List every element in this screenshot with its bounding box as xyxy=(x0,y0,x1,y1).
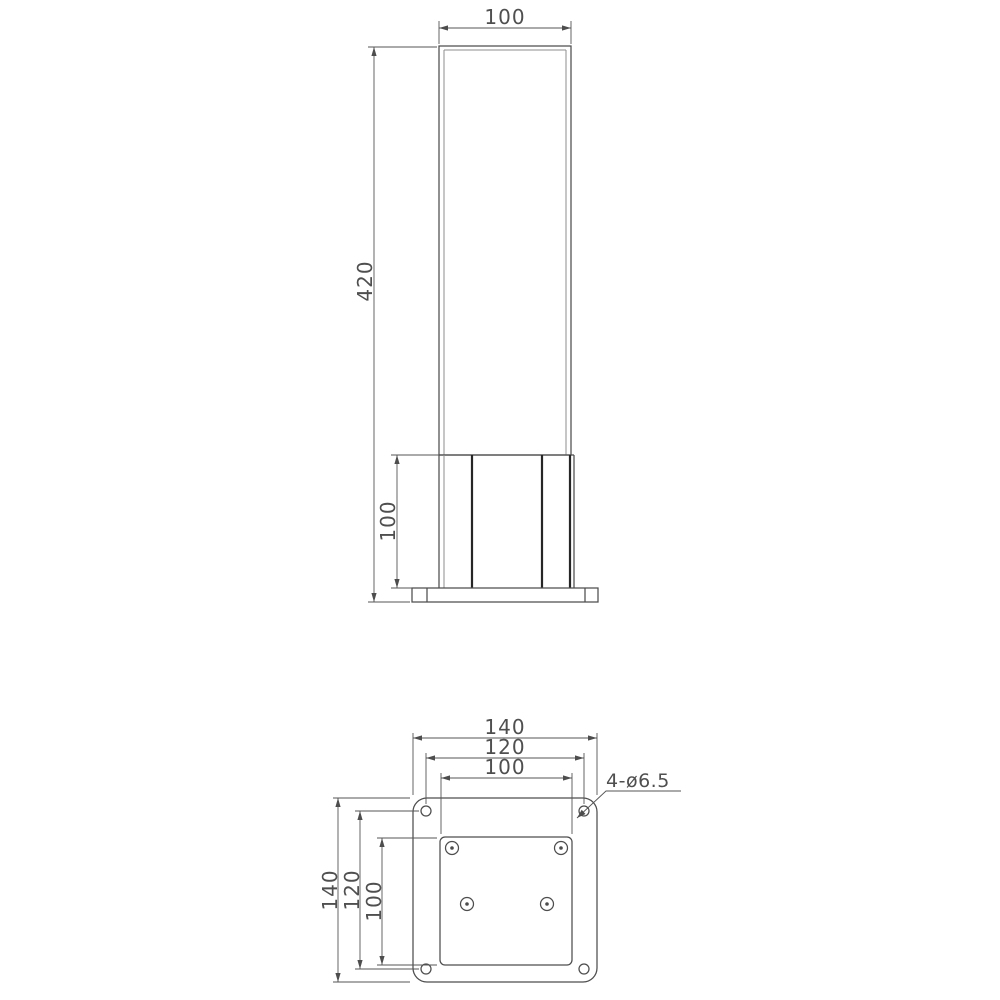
arrowhead xyxy=(357,960,362,969)
mounting-hole-bottom-right xyxy=(579,964,589,974)
dim-label-base-height: 100 xyxy=(376,500,400,541)
arrowhead xyxy=(441,775,450,780)
technical-drawing: 100 420 100 xyxy=(0,0,1000,1000)
arrowhead xyxy=(562,25,571,30)
mounting-hole-top-left xyxy=(421,806,431,816)
drawing-sheet: 100 420 100 xyxy=(0,0,1000,1000)
arrowhead xyxy=(575,755,584,760)
screw-mid-left xyxy=(461,898,474,911)
screw-mid-right xyxy=(541,898,554,911)
dim-label-plate-height-outer: 140 xyxy=(318,869,342,910)
arrowhead xyxy=(379,838,384,847)
post-outline xyxy=(439,46,571,455)
dim-post-width: 100 xyxy=(439,5,571,44)
front-elevation-view: 100 420 100 xyxy=(353,5,598,602)
dim-label-total-height: 420 xyxy=(353,260,377,301)
dim-footprint-height: 100 xyxy=(362,838,437,965)
dim-label-hole-spacing-vertical: 120 xyxy=(340,869,364,910)
arrowhead xyxy=(426,755,435,760)
dim-label-footprint-height: 100 xyxy=(362,880,386,921)
extension-lines xyxy=(441,773,572,834)
dim-footprint-width: 100 xyxy=(441,755,572,834)
arrowhead xyxy=(335,973,340,982)
arrowhead xyxy=(357,811,362,820)
dim-base-height: 100 xyxy=(376,455,439,588)
mounting-hole-bottom-left xyxy=(421,964,431,974)
leader-line xyxy=(577,791,681,818)
arrowhead xyxy=(394,579,399,588)
arrowhead xyxy=(379,956,384,965)
extension-lines xyxy=(377,838,437,965)
arrowhead xyxy=(371,593,376,602)
screw-top-left xyxy=(446,842,459,855)
dim-label-post-width: 100 xyxy=(484,5,525,29)
dim-label-footprint-width: 100 xyxy=(484,755,525,779)
screw-top-right xyxy=(555,842,568,855)
arrowhead xyxy=(439,25,448,30)
arrowhead xyxy=(413,735,422,740)
hole-callout: 4-ø6.5 xyxy=(577,770,681,818)
arrowhead xyxy=(394,455,399,464)
arrowhead xyxy=(588,735,597,740)
arrowhead xyxy=(371,47,376,56)
mounting-plate-side xyxy=(412,588,598,602)
arrowhead xyxy=(563,775,572,780)
plan-view: 140 120 100 140 xyxy=(318,715,681,982)
arrowhead xyxy=(335,798,340,807)
hole-callout-label: 4-ø6.5 xyxy=(606,770,670,792)
